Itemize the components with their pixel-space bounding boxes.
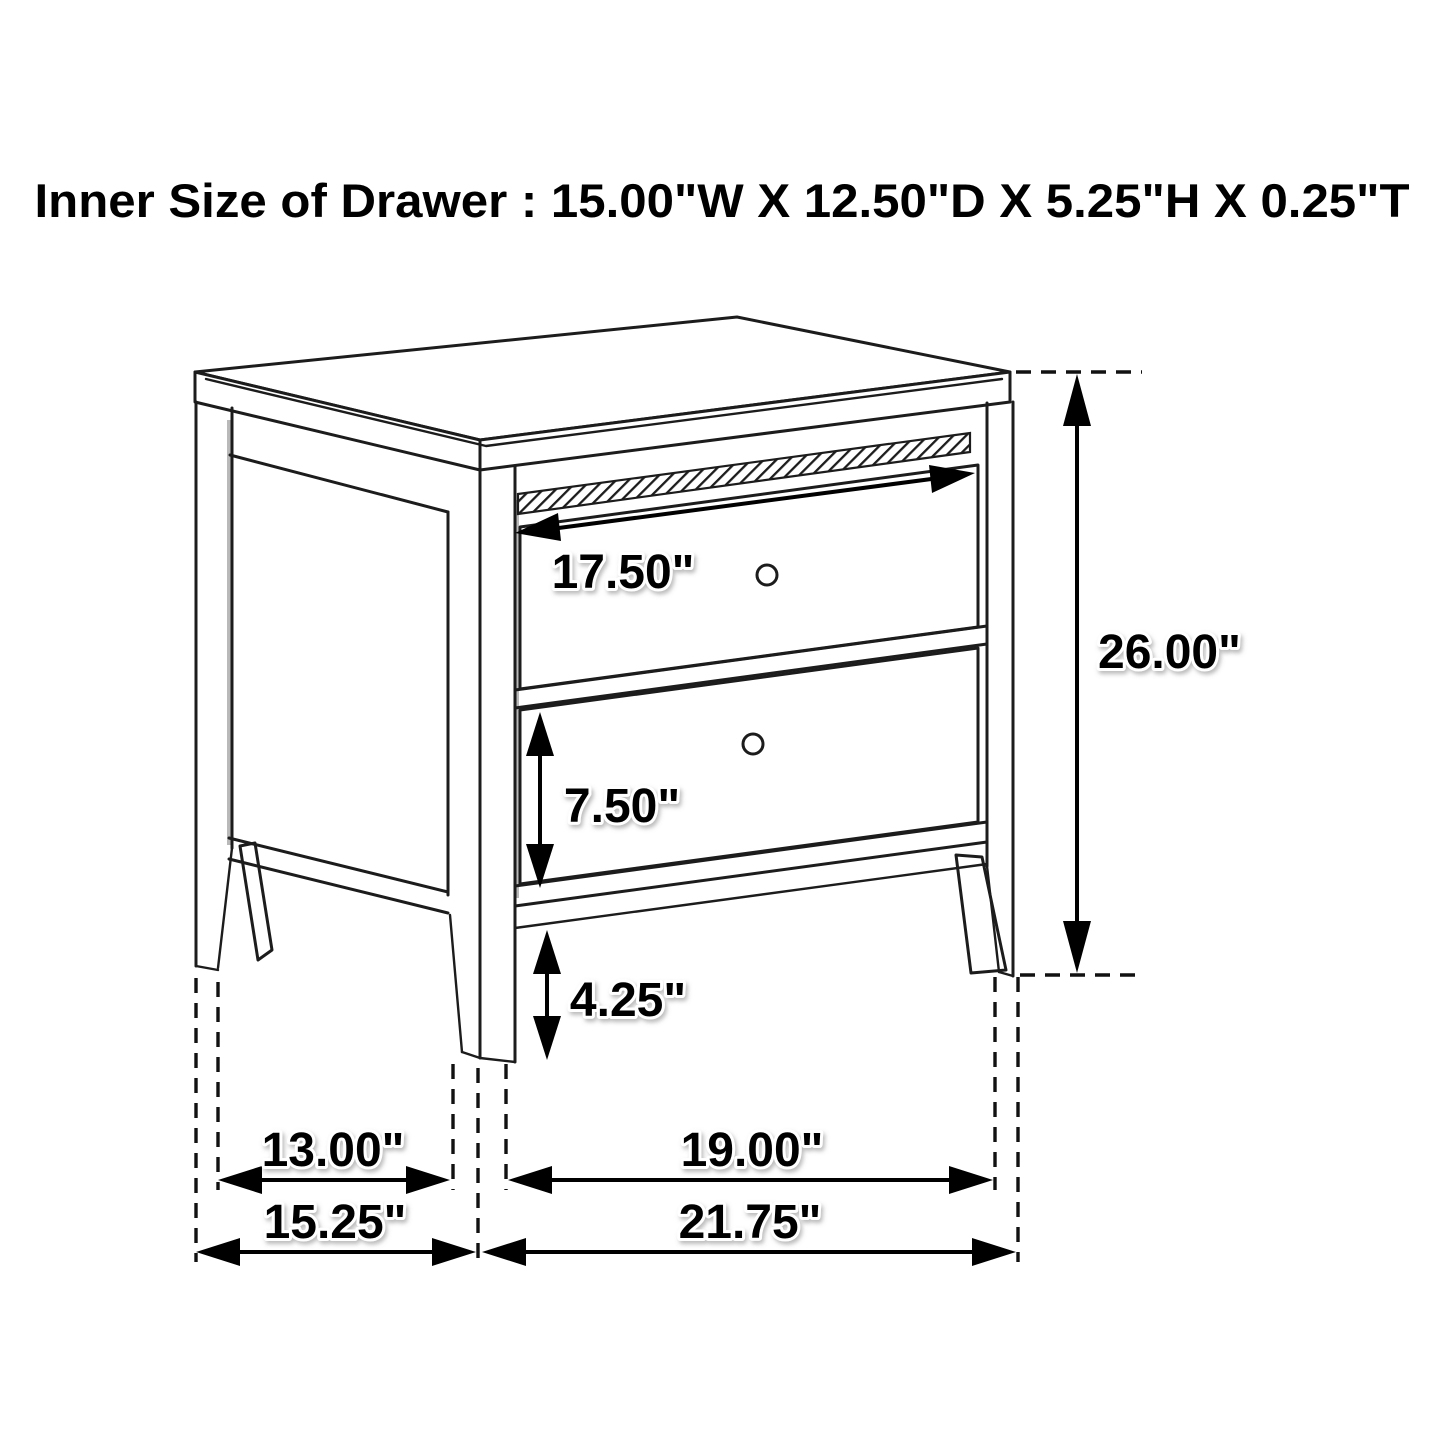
dimension-overall-depth-arrowhead-right [432, 1238, 476, 1266]
legs [450, 866, 1013, 1062]
front-left-leg-side-bottom [462, 1052, 480, 1058]
page-root: Inner Size of Drawer : 15.00"W X 12.50"D… [0, 0, 1445, 1445]
back-left-leg-taper [218, 848, 232, 968]
nightstand-drawing [195, 317, 1013, 1062]
rear-right-leg [956, 855, 1006, 973]
dimension-overall-height-arrowhead-top [1063, 374, 1091, 426]
dimension-lower-drawer-height-label: 7.50" [564, 780, 680, 833]
dimension-leg-height: 4.25" [533, 930, 686, 1060]
side-top-rail-edge [230, 455, 448, 512]
dimension-overall-depth-arrowhead-left [196, 1238, 240, 1266]
dimension-overall-height: 26.00" [1063, 374, 1241, 973]
dimension-overall-width-label: 21.75" [679, 1196, 822, 1249]
bottom-drawer-front [520, 648, 978, 884]
dimension-side-leg-span-arrowhead-left [218, 1166, 262, 1194]
dimension-overall-width-arrowhead-right [972, 1238, 1016, 1266]
diagram-title: Inner Size of Drawer : 15.00"W X 12.50"D… [35, 174, 1410, 227]
dimension-leg-height-label: 4.25" [570, 974, 686, 1027]
dimension-side-leg-span: 13.00" [218, 1124, 450, 1194]
front-left-leg-side-edge [450, 915, 462, 1052]
front-face [480, 402, 1013, 1062]
dimension-drawer-width-label: 17.50" [552, 546, 695, 599]
dimension-front-leg-span-arrowhead-left [508, 1166, 552, 1194]
dimension-side-leg-span-arrowhead-right [406, 1166, 450, 1194]
dimension-overall-height-arrowhead-bottom [1063, 921, 1091, 973]
rear-left-leg [240, 843, 272, 960]
dimension-overall-width: 21.75" [482, 1196, 1016, 1266]
dimension-leg-height-arrowhead-top [533, 930, 561, 974]
dimension-front-leg-span-label: 19.00" [681, 1124, 824, 1177]
dimension-front-leg-span-arrowhead-right [949, 1166, 993, 1194]
dimension-leg-height-arrowhead-bottom [533, 1016, 561, 1060]
left-side-panel [196, 402, 448, 970]
back-left-leg-bottom-edge [196, 966, 218, 970]
dimension-front-leg-span: 19.00" [508, 1124, 993, 1194]
dimension-side-leg-span-label: 13.00" [262, 1124, 405, 1177]
front-right-leg-bottom-edge [999, 972, 1013, 976]
dimension-overall-width-arrowhead-left [482, 1238, 526, 1266]
dimension-overall-depth-label: 15.25" [264, 1196, 407, 1249]
dimension-overall-depth: 15.25" [196, 1196, 476, 1266]
diagram-canvas: Inner Size of Drawer : 15.00"W X 12.50"D… [0, 0, 1445, 1445]
dimension-overall-height-label: 26.00" [1098, 626, 1241, 679]
front-left-leg-bottom-edge [480, 1058, 515, 1062]
